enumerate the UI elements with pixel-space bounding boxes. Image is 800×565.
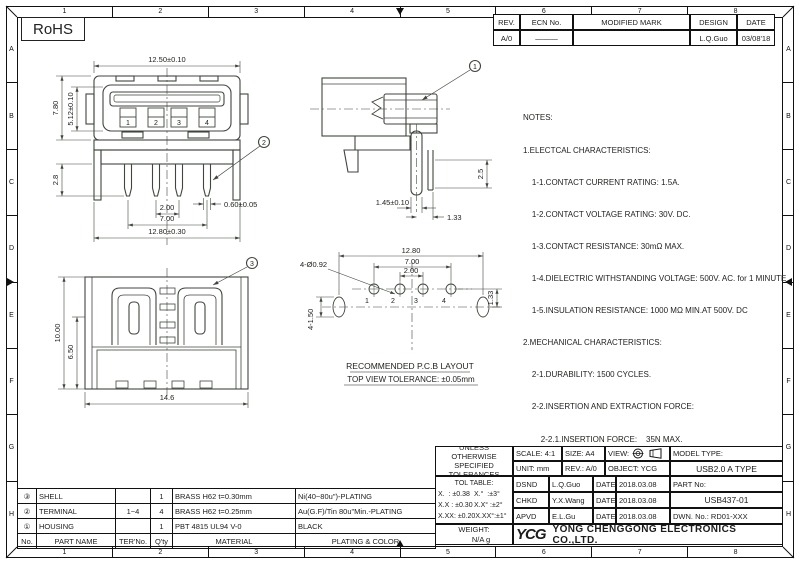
grid-row-label: C <box>6 150 17 216</box>
parts-row-terminal: ② TERMINAL 1~4 4 BRASS H62 t=0.25mm Au(G… <box>18 504 436 519</box>
grid-row-label: A <box>6 17 17 83</box>
grid-row-label: D <box>783 216 794 282</box>
grid-row-label: A <box>783 17 794 83</box>
revision-table: REV. ECN No. MODIFIED MARK DESIGN DATE A… <box>493 14 775 46</box>
grid-col-label: 5 <box>401 6 497 17</box>
tol-linear: X.X : ±0.30 <box>438 500 474 511</box>
object-cell: OBJECT: YCG <box>605 461 670 476</box>
model-type-value: USB2.0 A TYPE <box>670 461 783 476</box>
apvd-date-label: DATE <box>593 508 616 524</box>
chkd-role: CHKD <box>513 492 549 508</box>
parts-header-qty: Q'ty <box>151 534 173 549</box>
part-name: HOUSING <box>37 519 116 534</box>
scale-cell: SCALE: 4:1 <box>513 446 562 461</box>
tol-angular: X.X° :±2° <box>474 500 510 511</box>
third-angle-projection-icon <box>632 448 664 459</box>
grid-row-label: C <box>783 150 794 216</box>
weight-value: N/A g <box>458 535 490 545</box>
rev-value: A/0 <box>493 30 520 46</box>
part-qty: 1 <box>151 519 173 534</box>
center-marker-icon <box>7 278 14 286</box>
company-name: YONG CHENGGONG ELECTRONICS CO.,LTD. <box>553 524 780 545</box>
tol-angular: X.° :±3° <box>474 489 510 500</box>
rohs-badge: RoHS <box>21 17 85 41</box>
grid-row-label: B <box>6 83 17 149</box>
design-header: DESIGN <box>690 14 737 30</box>
grid-row-label: F <box>783 349 794 415</box>
part-no-bubble: ② <box>18 504 37 519</box>
tol-angular: X.XX°:±1° <box>475 511 510 522</box>
note-line: 2-2.INSERTION AND EXTRACTION FORCE: <box>523 402 781 413</box>
title-block: UNLESS OTHERWISE SPECIFIED TOLERANCES SC… <box>435 446 783 545</box>
grid-col-label: 2 <box>113 6 209 17</box>
model-type-label: MODEL TYPE: <box>670 446 783 461</box>
view-cell: VIEW: <box>605 446 670 461</box>
note-line: 2.MECHANICAL CHARACTERISTICS: <box>523 338 781 349</box>
part-no-label: PART No: <box>670 476 783 492</box>
grid-row-label: B <box>783 83 794 149</box>
note-line: 1-3.CONTACT RESISTANCE: 30mΩ MAX. <box>523 242 781 253</box>
apvd-name: E.L.Gu <box>549 508 593 524</box>
note-line: 1.ELECTCAL CHARACTERISTICS: <box>523 146 781 157</box>
part-material: BRASS H62 t=0.25mm <box>173 504 296 519</box>
date-header: DATE <box>737 14 775 30</box>
part-plating: BLACK <box>296 519 436 534</box>
note-line: 2-2.1.INSERTION FORCE: 35N MAX. <box>523 435 781 446</box>
parts-row-shell: ③ SHELL 1 BRASS H62 t=0.30mm Ni(40~80u")… <box>18 489 436 504</box>
chkd-date: 2018.03.08 <box>616 492 670 508</box>
part-name: TERMINAL <box>37 504 116 519</box>
company-cell: YCG YONG CHENGGONG ELECTRONICS CO.,LTD. <box>513 524 783 545</box>
part-material: PBT 4815 UL94 V-0 <box>173 519 296 534</box>
grid-col-label: 1 <box>17 6 113 17</box>
part-name: SHELL <box>37 489 116 504</box>
tolerance-header: UNLESS OTHERWISE SPECIFIED TOLERANCES <box>435 446 513 476</box>
grid-row-label: G <box>783 415 794 481</box>
rev-cell: REV.: A/0 <box>562 461 605 476</box>
design-value: L.Q.Guo <box>690 30 737 46</box>
modified-value <box>573 30 690 46</box>
modified-header: MODIFIED MARK <box>573 14 690 30</box>
rev-header: REV. <box>493 14 520 30</box>
part-ter <box>116 519 151 534</box>
part-no-bubble: ① <box>18 519 37 534</box>
parts-header-plating: PLATING & COLOR <box>296 534 436 549</box>
part-plating: Ni(40~80u")-PLATING <box>296 489 436 504</box>
engineering-drawing-sheet: 1 2 3 4 12.50±0.10 7.80 5.12±0.10 2.8 2.… <box>0 0 800 565</box>
note-line: 1-5.INSULATION RESISTANCE: 1000 MΩ MIN.A… <box>523 306 781 317</box>
grid-row-label: G <box>6 415 17 481</box>
part-ter <box>116 489 151 504</box>
tolerance-table: TOL TABLE: X. : ±0.38X.° :±3° X.X : ±0.3… <box>435 476 513 524</box>
part-no-bubble: ③ <box>18 489 37 504</box>
tolerance-header-line1: UNLESS OTHERWISE <box>438 446 510 461</box>
ecn-value: ——— <box>520 30 573 46</box>
part-qty: 4 <box>151 504 173 519</box>
parts-header-material: MATERIAL <box>173 534 296 549</box>
unit-cell: UNIT: mm <box>513 461 562 476</box>
grid-col-label: 3 <box>209 6 305 17</box>
dsnd-date-label: DATE <box>593 476 616 492</box>
note-line: NOTES: <box>523 113 781 124</box>
dsnd-name: L.Q.Guo <box>549 476 593 492</box>
parts-header-no: No. <box>18 534 37 549</box>
date-value: 03/08'18 <box>737 30 775 46</box>
grid-row-label: F <box>6 349 17 415</box>
parts-table: ③ SHELL 1 BRASS H62 t=0.30mm Ni(40~80u")… <box>17 488 436 549</box>
grid-row-label: E <box>6 283 17 349</box>
note-line: 1-2.CONTACT VOLTAGE RATING: 30V. DC. <box>523 210 781 221</box>
note-line: 2-1.DURABILITY: 1500 CYCLES. <box>523 370 781 381</box>
grid-col-label: 4 <box>305 6 401 17</box>
note-line: 1-1.CONTACT CURRENT RATING: 1.5A. <box>523 178 781 189</box>
chkd-name: Y.X.Wang <box>549 492 593 508</box>
tolerance-header-line2: SPECIFIED TOLERANCES <box>438 461 510 476</box>
tol-linear: X. : ±0.38 <box>438 489 474 500</box>
parts-row-housing: ① HOUSING 1 PBT 4815 UL94 V-0 BLACK <box>18 519 436 534</box>
part-no-value: USB437-01 <box>670 492 783 508</box>
dsnd-role: DSND <box>513 476 549 492</box>
weight-cell: WEIGHT: N/A g <box>435 524 513 545</box>
center-marker-icon <box>785 278 792 286</box>
tol-table-title: TOL TABLE: <box>455 478 494 489</box>
part-qty: 1 <box>151 489 173 504</box>
parts-header-ter: TER'No. <box>116 534 151 549</box>
grid-row-label: H <box>783 482 794 547</box>
company-logo: YCG <box>516 526 546 543</box>
tol-linear: X.XX: ±0.20 <box>438 511 475 522</box>
grid-row-label: H <box>6 482 17 547</box>
dsnd-date: 2018.03.08 <box>616 476 670 492</box>
chkd-date-label: DATE <box>593 492 616 508</box>
ecn-header: ECN No. <box>520 14 573 30</box>
apvd-date: 2018.03.08 <box>616 508 670 524</box>
weight-label: WEIGHT: <box>458 525 489 535</box>
grid-row-label: E <box>783 283 794 349</box>
part-plating: Au(G.F)/Tin 80u"Min.-PLATING <box>296 504 436 519</box>
center-marker-icon <box>396 8 404 15</box>
dwn-no: DWN. No.: RD01-XXX <box>670 508 783 524</box>
part-ter: 1~4 <box>116 504 151 519</box>
grid-row-label: D <box>6 216 17 282</box>
view-label: VIEW: <box>608 449 629 458</box>
parts-header-row: No. PART NAME TER'No. Q'ty MATERIAL PLAT… <box>18 534 436 549</box>
size-cell: SIZE: A4 <box>562 446 605 461</box>
part-material: BRASS H62 t=0.30mm <box>173 489 296 504</box>
note-line: 1-4.DIELECTRIC WITHSTANDING VOLTAGE: 500… <box>523 274 781 285</box>
parts-header-name: PART NAME <box>37 534 116 549</box>
apvd-role: APVD <box>513 508 549 524</box>
